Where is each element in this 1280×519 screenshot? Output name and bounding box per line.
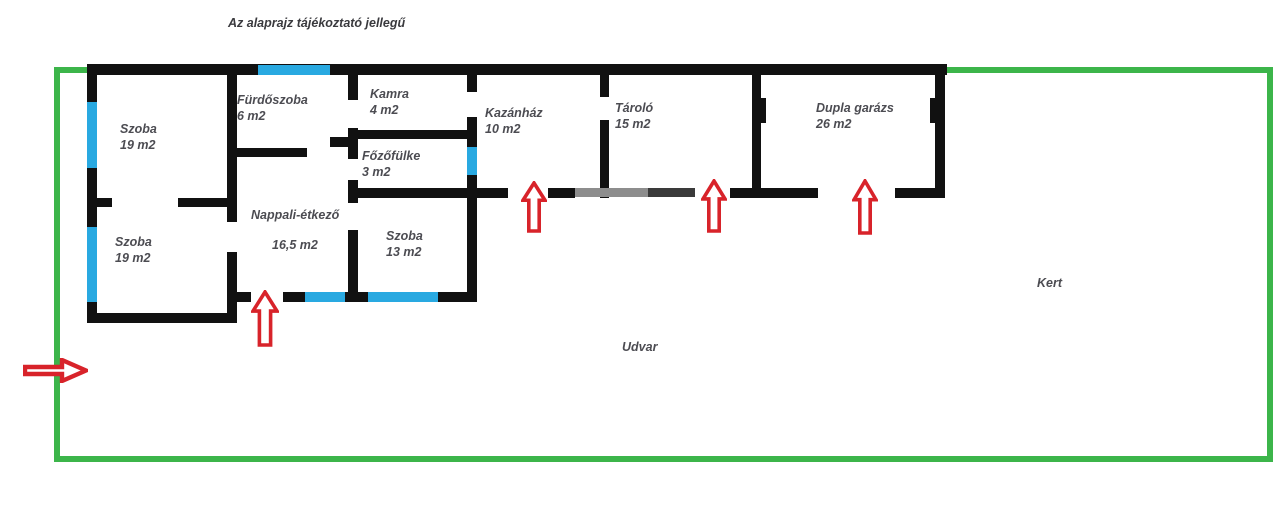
room-label-dupla-garazs: Dupla garázs26 m2: [816, 100, 894, 132]
kamra-bottom-wall: [352, 130, 477, 139]
room-label-fozofulke: Főzőfülke3 m2: [362, 148, 420, 180]
top-wall: [87, 64, 947, 75]
room-name-szoba-bottom-left: Szoba: [115, 234, 152, 250]
entrance-arrow-nappali: [251, 290, 279, 347]
room-label-kamra: Kamra4 m2: [370, 86, 409, 118]
szoba-nappali-wall-lower: [227, 252, 237, 323]
fozofulke-bottom-wall: [348, 188, 477, 198]
room-area-tarolo: 15 m2: [615, 116, 653, 132]
room-label-tarolo: Tároló15 m2: [615, 100, 653, 132]
furdoszoba-top-window: [258, 65, 330, 75]
room-area-nappali-etkezo: 16,5 m2: [272, 237, 339, 253]
entrance-arrow-tarolo-shape: [703, 181, 725, 231]
room-label-szoba-top-left: Szoba19 m2: [120, 121, 157, 153]
south-wall-tarolo-garazs: [730, 188, 818, 198]
kazanhaz-left-wall-c: [467, 175, 477, 302]
right-wall-door-jamb: [930, 98, 935, 123]
entrance-arrow-gate-shape: [25, 360, 86, 381]
south-wall-kazanhaz-left: [477, 188, 508, 198]
room-area-kamra: 4 m2: [370, 102, 409, 118]
room-area-szoba-top-left: 19 m2: [120, 137, 157, 153]
room-name-furdoszoba: Fürdőszoba: [237, 92, 308, 108]
room-name-kamra: Kamra: [370, 86, 409, 102]
nappali-bottom-stub: [227, 292, 251, 302]
room-name-szoba-top-left: Szoba: [120, 121, 157, 137]
kazanhaz-tarolo-wall-a: [600, 64, 609, 97]
outdoor-label-kert: Kert: [1037, 276, 1062, 290]
room-name-tarolo: Tároló: [615, 100, 653, 116]
room-label-szoba-13: Szoba13 m2: [386, 228, 423, 260]
outdoor-label-udvar: Udvar: [622, 340, 657, 354]
kazanhaz-left-wall-b: [467, 117, 477, 147]
south-wall-kazanhaz-right: [548, 188, 575, 198]
south-wall-faded-dark: [648, 188, 695, 197]
room-name-dupla-garazs: Dupla garázs: [816, 100, 894, 116]
kazanhaz-tarolo-wall-b: [600, 120, 609, 198]
room-name-nappali-etkezo: Nappali-étkező: [251, 207, 339, 223]
room-area-fozofulke: 3 m2: [362, 164, 420, 180]
entrance-arrow-tarolo: [701, 179, 727, 233]
tarolo-garazs-wall: [752, 64, 761, 198]
szoba13-window: [368, 292, 438, 302]
floor-plan: Az alaprajz tájékoztató jellegű Szoba19 …: [0, 0, 1280, 519]
szoba-bl-bottom-wall: [87, 313, 237, 323]
entrance-arrow-kazanhaz-shape: [523, 183, 545, 231]
room-label-kazanhaz: Kazánház10 m2: [485, 105, 543, 137]
szoba13-left-wall: [348, 230, 358, 302]
entrance-arrow-garazs: [852, 179, 878, 235]
room-area-kazanhaz: 10 m2: [485, 121, 543, 137]
room-area-szoba-bottom-left: 19 m2: [115, 250, 152, 266]
entrance-arrow-kazanhaz: [521, 181, 547, 233]
entrance-arrow-nappali-shape: [253, 292, 277, 345]
szoba-divider-wall-a: [87, 198, 112, 207]
kazanhaz-window: [467, 147, 477, 175]
szoba-bl-window: [87, 227, 97, 302]
entrance-arrow-garazs-shape: [854, 181, 876, 233]
room-label-nappali-etkezo: Nappali-étkező16,5 m2: [251, 207, 339, 253]
kazanhaz-left-wall-a: [467, 64, 477, 92]
room-area-dupla-garazs: 26 m2: [816, 116, 894, 132]
szoba-tl-window: [87, 102, 97, 168]
room-name-fozofulke: Főzőfülke: [362, 148, 420, 164]
plan-title: Az alaprajz tájékoztató jellegű: [228, 16, 405, 30]
garazs-door-jamb: [761, 98, 766, 123]
room-name-kazanhaz: Kazánház: [485, 105, 543, 121]
right-wall: [935, 64, 945, 198]
nappali-window: [305, 292, 345, 302]
room-area-szoba-13: 13 m2: [386, 244, 423, 260]
furdoszoba-bottom-wall: [233, 148, 307, 157]
entrance-arrow-gate: [23, 358, 88, 383]
szoba-nappali-wall-upper: [227, 64, 237, 222]
kamra-left-wall-a: [348, 64, 358, 100]
room-name-szoba-13: Szoba: [386, 228, 423, 244]
room-area-furdoszoba: 6 m2: [237, 108, 308, 124]
room-label-furdoszoba: Fürdőszoba6 m2: [237, 92, 308, 124]
room-label-szoba-bottom-left: Szoba19 m2: [115, 234, 152, 266]
south-wall-garazs-right: [895, 188, 945, 198]
